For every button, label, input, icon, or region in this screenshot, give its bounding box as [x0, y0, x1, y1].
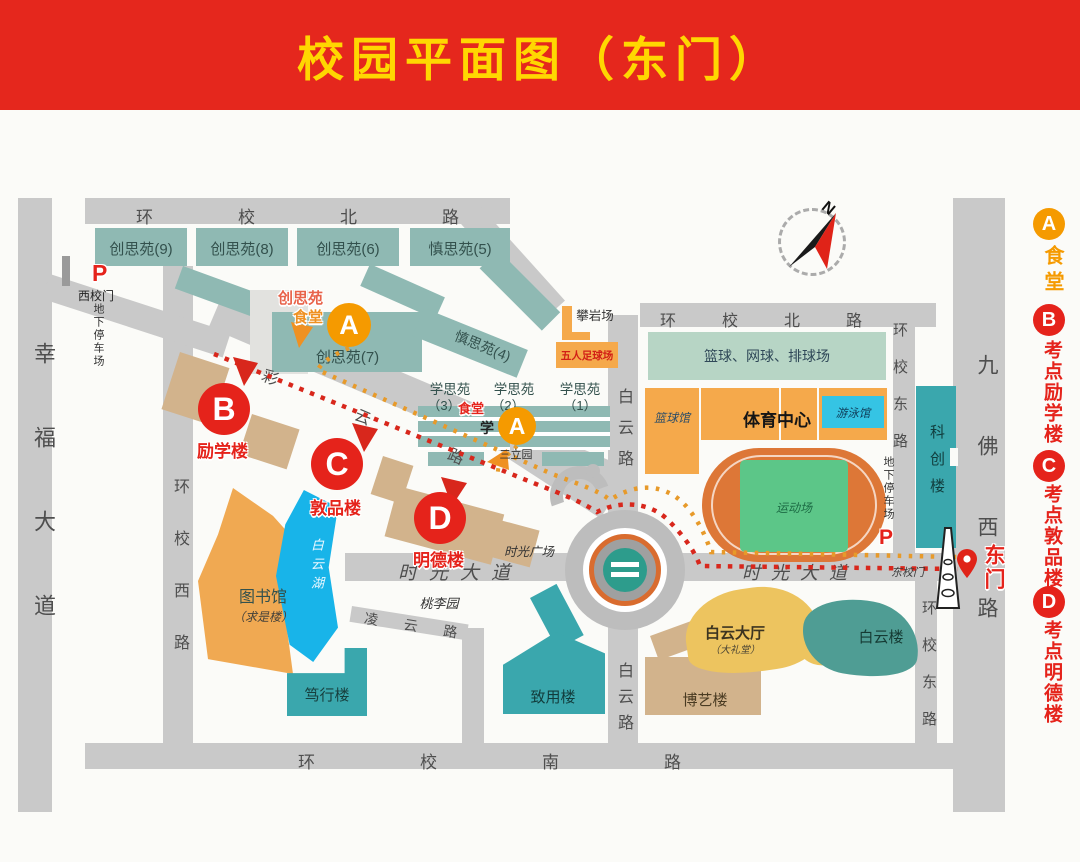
kechuanglou-notch — [950, 448, 958, 466]
basketball-gym — [645, 388, 699, 474]
label-chuangsiyuan-6: 创思苑(6) — [297, 238, 399, 259]
legend-label-b: 考点励学楼 — [1038, 340, 1065, 445]
road-label-huanxiao-beilu-west: 环校北路 — [136, 203, 544, 228]
label-mingdelou: 明德楼 — [413, 546, 464, 571]
legend-marker-d: D — [1033, 586, 1065, 618]
label-chuangsiyuan-8: 创思苑(8) — [196, 238, 288, 259]
label-zhiyonglou: 致用楼 — [519, 686, 587, 707]
road-label-shiguang-dadao-east: 时光大道 — [742, 559, 858, 585]
road-label-lingyun-lu: 凌云路 — [363, 608, 485, 647]
roundabout-bar-1 — [611, 562, 639, 567]
label-boyilou: 博艺楼 — [672, 689, 738, 710]
courts-label: 篮球、网球、排球场 — [704, 346, 830, 366]
courts-area: 篮球、网球、排球场 — [648, 332, 886, 380]
label-baiyundating: 白云大厅 — [690, 622, 780, 643]
compass-circle — [778, 208, 846, 276]
label-taoliyuan: 桃李园 — [414, 593, 464, 612]
west-gate-label: 西校门 — [78, 287, 114, 304]
label-xuesiyuan-1-num: （1） — [552, 395, 608, 414]
label-sanliyuan: 三立园 — [496, 446, 536, 462]
road-label-huanxiao-donglu-upper: 环校东路 — [890, 322, 911, 470]
label-baiyunlou: 白云楼 — [845, 626, 917, 647]
roundabout-center-green — [603, 548, 647, 592]
label-shiguang-guangchang: 时光广场 — [498, 541, 560, 560]
label-qiushilou: （求是楼） — [208, 608, 318, 625]
legend-marker-a: A — [1033, 208, 1065, 240]
five-a-side-label: 五人足球场 — [561, 348, 614, 363]
label-tiyuzhongxin: 体育中心 — [712, 406, 842, 431]
west-underground-parking-label: 地下停车场 — [90, 303, 106, 368]
label-chuangsiyuan-canteen-1: 创思苑 — [278, 287, 323, 308]
title-banner: 校园平面图（东门） — [0, 0, 1080, 110]
label-chuangsiyuan-canteen-2: 食堂 — [293, 306, 323, 327]
five-a-side-pitch: 五人足球场 — [556, 342, 618, 368]
label-panyanchang: 攀岩场 — [572, 305, 618, 324]
road-label-huanxiao-xilu: 环校西路 — [168, 478, 192, 686]
building-duxinglou — [287, 648, 367, 716]
label-kechuanglou: 科创楼 — [926, 424, 947, 505]
marker-a-xuesiyuan: A — [498, 407, 536, 445]
road-label-xingfu-dadao: 幸福大道 — [26, 342, 58, 678]
marker-d: D — [414, 492, 466, 544]
marker-a-canteen: A — [327, 303, 371, 347]
label-xue-char: 学 — [478, 418, 496, 438]
label-yundongchang: 运动场 — [740, 499, 848, 516]
marker-b: B — [198, 383, 250, 435]
label-lixuelou: 励学楼 — [197, 437, 248, 462]
label-east-gate: 东门 — [978, 544, 1008, 592]
label-tushuguan: 图书馆 — [213, 583, 313, 607]
road-label-jiufo-xilu: 九佛西路 — [972, 354, 1002, 678]
page-title: 校园平面图（东门） — [297, 21, 783, 90]
label-chuangsiyuan-9: 创思苑(9) — [95, 238, 187, 259]
roundabout-spiral-dot — [586, 464, 600, 478]
road-label-huanxiao-beilu-east: 环校北路 — [660, 307, 908, 331]
legend-label-a: 食堂 — [1038, 245, 1067, 297]
road-label-baiyun-lu-lower: 白云路 — [612, 662, 636, 740]
marker-c: C — [311, 438, 363, 490]
label-dunpinlou: 敦品楼 — [310, 494, 361, 519]
label-baiyunhu: 白云湖 — [306, 538, 325, 595]
label-dalitang: （大礼堂） — [694, 641, 776, 656]
label-shensiyuan-5: 慎思苑(5) — [410, 238, 510, 259]
label-lanqiuguan: 篮球馆 — [645, 409, 699, 426]
climbing-wall-horizontal — [562, 332, 590, 340]
label-duxinglou: 笃行楼 — [294, 684, 360, 705]
west-gate-barrier-icon — [62, 256, 70, 286]
label-chuangsiyuan-7: 创思苑(7) — [300, 346, 395, 367]
building-tan-2 — [239, 414, 300, 469]
road-label-huanxiao-nanlu: 环校南路 — [298, 748, 786, 773]
legend-marker-c: C — [1033, 450, 1065, 482]
road-label-east-school-gate: 东校门 — [891, 564, 924, 580]
east-underground-parking-label: 地下停车场 — [880, 456, 896, 521]
west-parking-p: P — [92, 260, 107, 287]
legend-marker-b: B — [1033, 304, 1065, 336]
east-parking-p: P — [879, 526, 893, 550]
road-label-baiyun-lu-upper: 白云路 — [612, 388, 636, 481]
roundabout-bar-2 — [611, 572, 639, 577]
campus-map: 幸福大道 环校北路 环校北路 环校西路 环校东路 环校东路 环校南路 白云路 白… — [0, 0, 1080, 862]
label-xuesiyuan-canteen: 食堂 — [458, 398, 484, 417]
legend-label-d: 考点明德楼 — [1038, 620, 1065, 725]
label-youyongguan: 游泳馆 — [824, 405, 882, 421]
legend-label-c: 考点敦品楼 — [1038, 484, 1065, 589]
road-label-huanxiao-donglu-lower: 环校东路 — [919, 600, 940, 748]
